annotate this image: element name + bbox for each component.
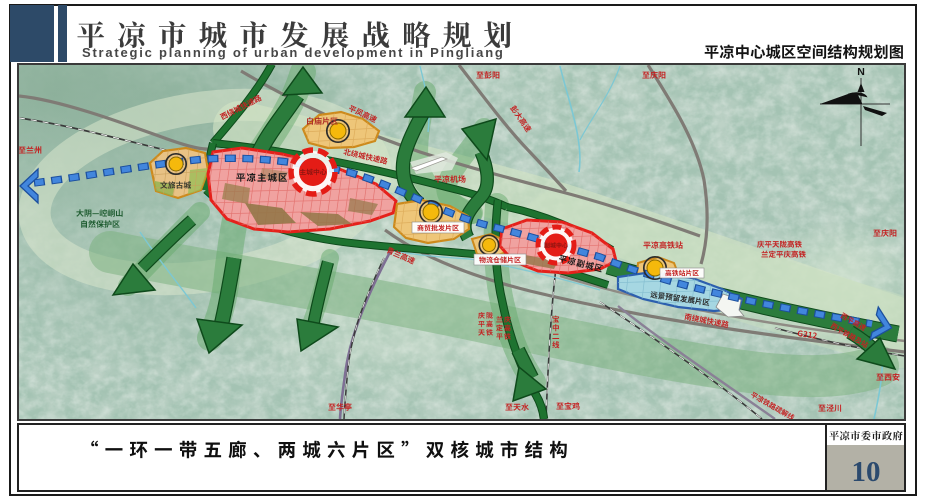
- svg-text:Strategic planning of urban de: Strategic planning of urban development …: [82, 45, 505, 60]
- svg-text:10: 10: [852, 456, 881, 488]
